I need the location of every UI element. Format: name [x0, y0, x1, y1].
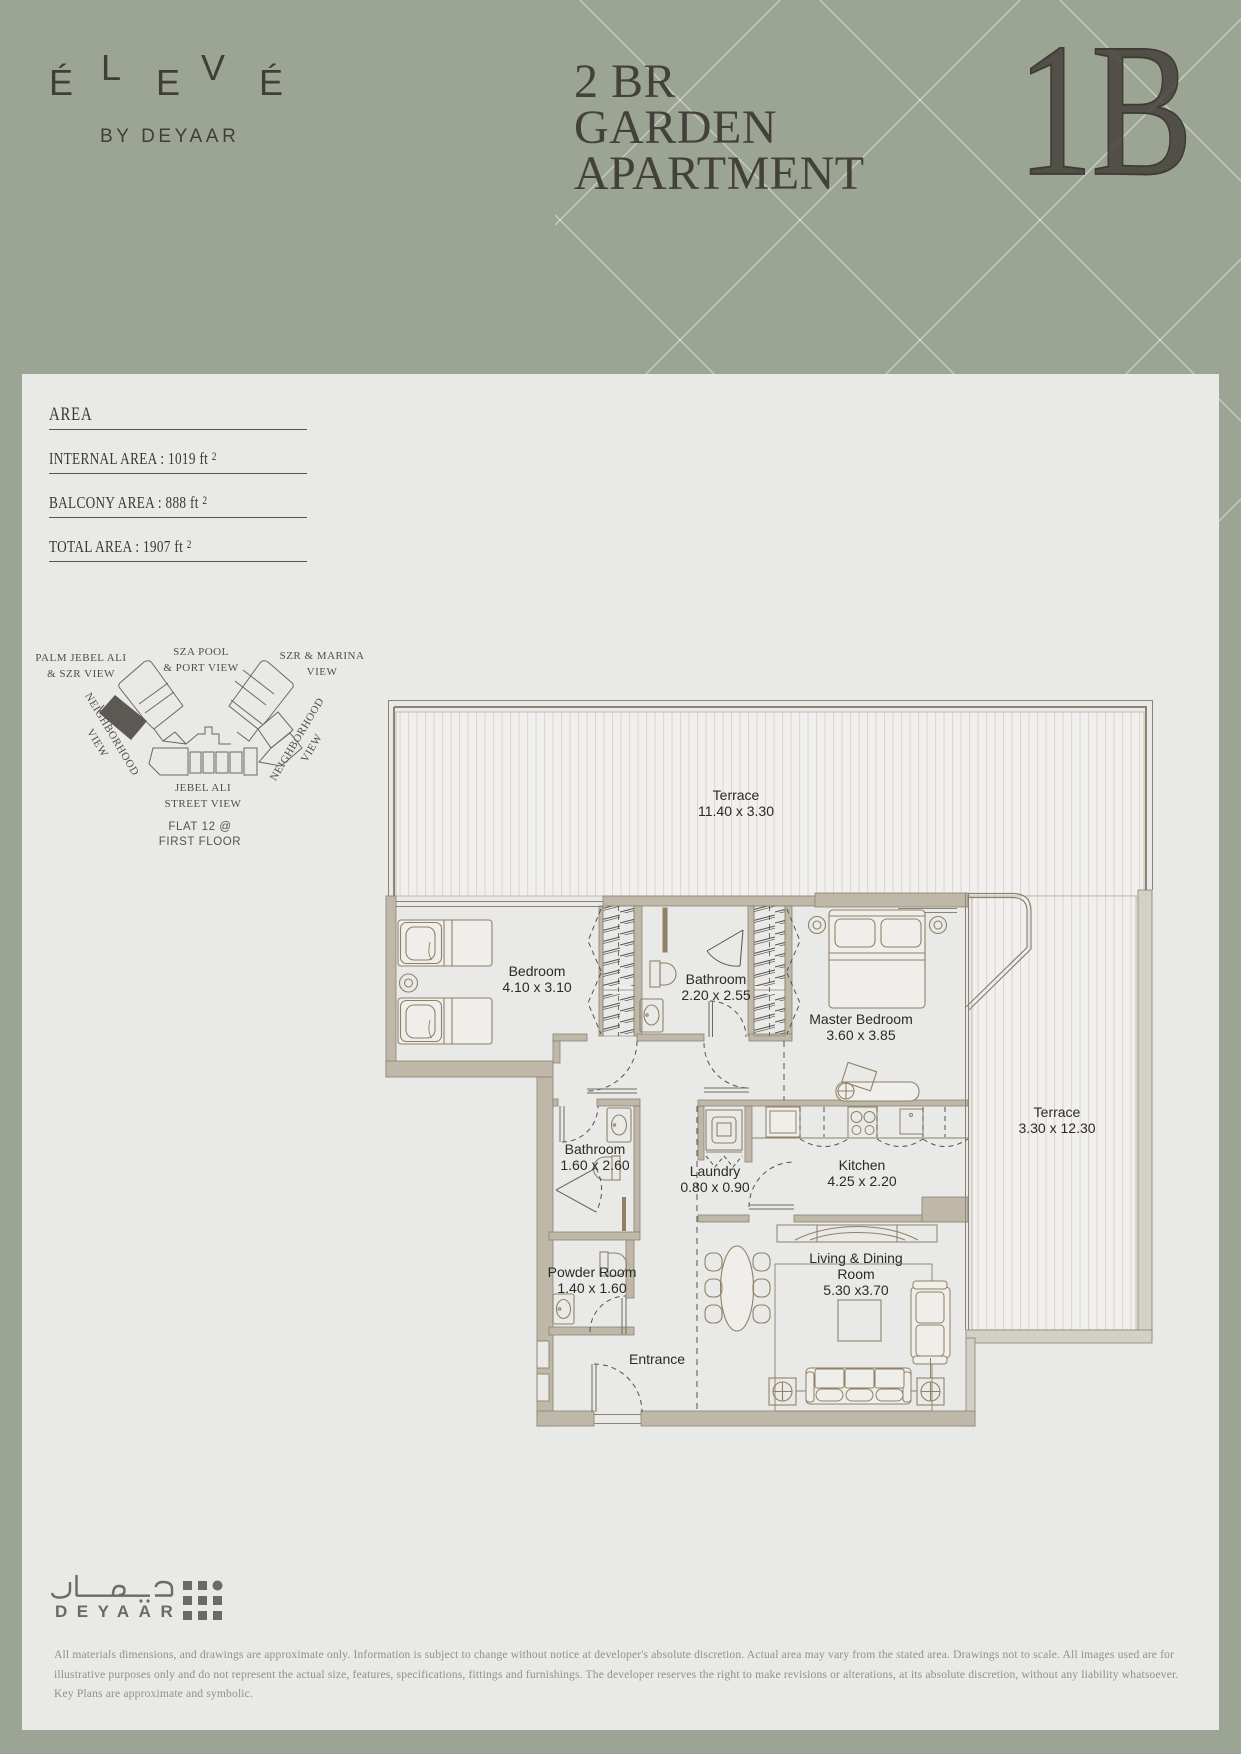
svg-text:É: É [49, 62, 73, 103]
svg-text:É: É [259, 62, 283, 103]
svg-text:L: L [101, 47, 121, 88]
svg-text:E: E [156, 62, 180, 103]
svg-text:V: V [201, 47, 225, 88]
svg-text:BY DEYAAR: BY DEYAAR [100, 126, 239, 147]
